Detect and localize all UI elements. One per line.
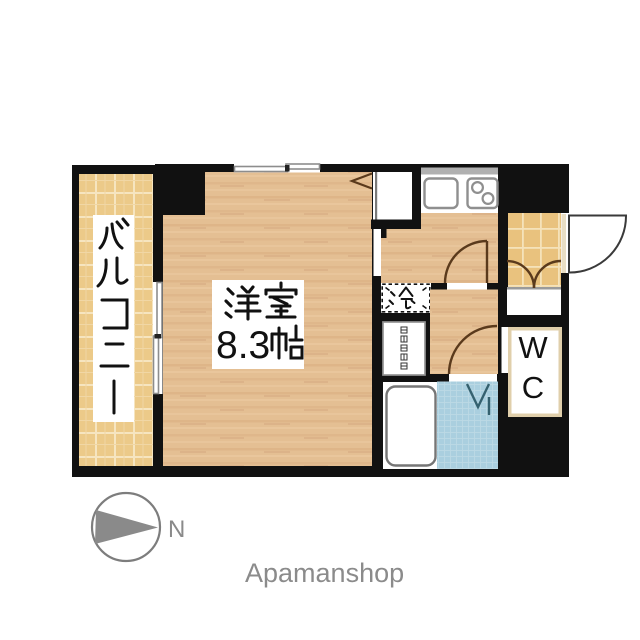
svg-text:W: W: [518, 330, 548, 365]
svg-text:N: N: [168, 516, 185, 543]
svg-text:C: C: [522, 370, 544, 405]
svg-text:Apamanshop: Apamanshop: [245, 558, 404, 588]
svg-text:8.3: 8.3: [216, 324, 270, 367]
